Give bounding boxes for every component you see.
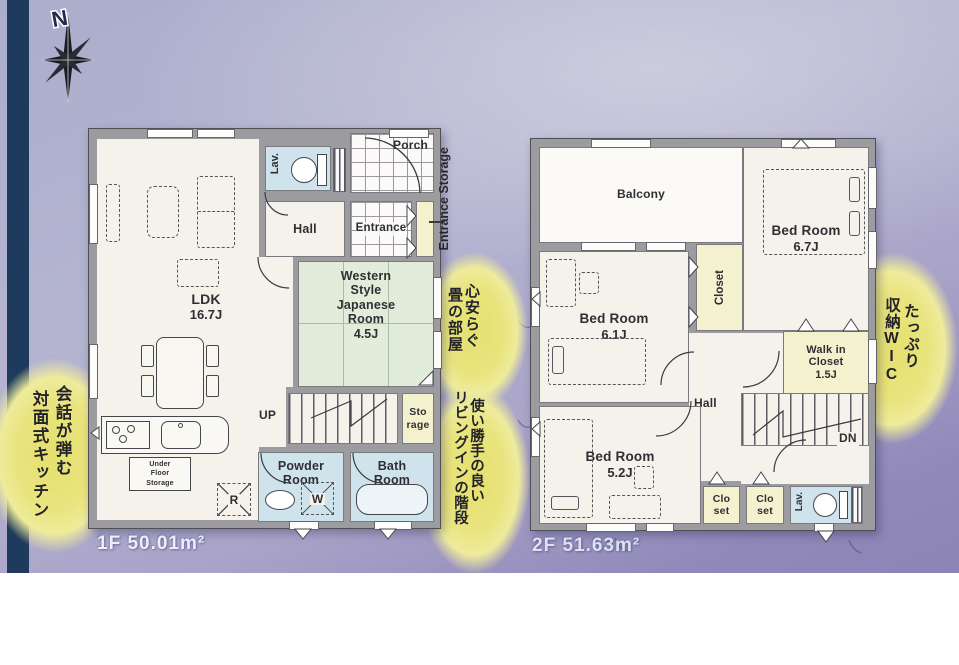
cabinet xyxy=(177,259,219,287)
floorplan-2f: Balcony Bed Room 6.7J Closet Bed Room 6.… xyxy=(530,138,876,531)
desk xyxy=(634,466,654,489)
floorplan-1f: LDK 16.7J Lav. Porch Hall Entrance Weste… xyxy=(88,128,441,529)
closet-left-label: Clo set xyxy=(704,493,739,517)
pillow xyxy=(552,346,564,374)
pillow xyxy=(551,496,579,510)
powder-sink xyxy=(265,490,295,510)
annotation-stairs-col2: リビングインの階段 xyxy=(450,390,471,525)
lavatory-label: Lav. xyxy=(269,153,281,174)
under-floor-storage-label: Under Floor Storage xyxy=(140,460,180,487)
desk-chair xyxy=(579,272,599,294)
window xyxy=(531,417,540,457)
wic-label: Walk in Closet 1.5J xyxy=(804,344,848,382)
entrance-storage-label: Entrance Storage xyxy=(437,147,451,251)
burner xyxy=(119,435,127,443)
dining-chair xyxy=(206,375,219,397)
window xyxy=(197,129,235,138)
bathtub xyxy=(356,484,428,515)
room-balcony: Balcony xyxy=(539,147,743,243)
room-entrance-storage xyxy=(416,201,434,257)
toilet-bowl xyxy=(813,493,837,517)
room-closet-right: Clo set xyxy=(746,486,784,524)
window xyxy=(591,139,651,148)
window xyxy=(586,523,636,532)
window xyxy=(868,167,877,209)
window xyxy=(781,139,836,148)
faucet xyxy=(178,423,183,428)
closet-label: Closet xyxy=(714,270,726,305)
tv-board xyxy=(106,184,120,242)
window xyxy=(868,231,877,269)
toilet-tank xyxy=(839,491,848,519)
porch-label: Porch xyxy=(393,139,428,153)
window xyxy=(814,523,834,532)
room-hall-2f xyxy=(741,446,869,484)
shelf-unit xyxy=(851,487,862,523)
annotation-wic-col1: たっぷり xyxy=(899,303,921,369)
storage-label: Sto rage xyxy=(403,406,433,430)
floor2-area-label: 2F 51.63m² xyxy=(532,535,640,557)
hall-label: Hall xyxy=(293,222,317,236)
washer-label: W xyxy=(310,493,325,505)
room-closet-left: Clo set xyxy=(703,486,740,524)
window xyxy=(289,521,319,530)
pillow xyxy=(849,177,860,202)
window xyxy=(433,277,442,319)
annotation-kitchen-col1: 会話が弾む xyxy=(50,385,74,478)
desk xyxy=(546,259,576,307)
dining-chair xyxy=(206,345,219,367)
sofa xyxy=(197,176,235,248)
shelf-unit xyxy=(333,148,346,192)
window xyxy=(646,242,686,251)
stairs-down-label: DN xyxy=(837,432,859,446)
window xyxy=(581,242,636,251)
ldk-label: LDK 16.7J xyxy=(171,291,241,323)
window xyxy=(868,339,877,384)
window xyxy=(646,523,674,532)
burner xyxy=(127,425,135,433)
window xyxy=(389,129,429,138)
room-porch: Porch xyxy=(350,133,434,193)
room-hall: Hall xyxy=(265,201,345,257)
room-walk-in-closet: Walk in Closet 1.5J xyxy=(783,331,869,395)
burner xyxy=(112,426,120,434)
annotation-wic-col2: 収納WIC xyxy=(880,297,902,384)
dining-chair xyxy=(141,375,154,397)
balcony-label: Balcony xyxy=(617,188,665,202)
staircase-up xyxy=(288,393,398,444)
stairs-up-label: UP xyxy=(259,409,276,423)
refrigerator-label: R xyxy=(228,494,241,506)
room-hall-2f xyxy=(689,333,783,393)
window xyxy=(531,287,540,327)
window xyxy=(89,344,98,399)
annotation-tatami-col2: 畳の部屋 xyxy=(444,287,465,353)
desk xyxy=(609,495,661,519)
floor1-area-label: 1F 50.01m² xyxy=(97,533,205,555)
lavatory-2f-label: Lav. xyxy=(794,492,805,511)
annotation-kitchen-col2: 対面式キッチン xyxy=(27,390,51,520)
window xyxy=(147,129,193,138)
toilet-tank xyxy=(317,154,327,186)
western-room-label: Western Style Japanese Room 4.5J xyxy=(329,269,403,342)
entrance-label: Entrance xyxy=(356,222,407,235)
washer-space: W xyxy=(301,482,334,515)
window xyxy=(89,184,98,244)
sofa-divider xyxy=(198,211,234,212)
window xyxy=(374,521,412,530)
under-floor-storage: Under Floor Storage xyxy=(129,457,191,491)
room-storage: Sto rage xyxy=(402,393,434,444)
room-closet: Closet xyxy=(696,244,743,331)
closet-right-label: Clo set xyxy=(747,493,783,517)
toilet-bowl xyxy=(291,157,317,183)
room-entrance: Entrance xyxy=(350,201,412,257)
dining-chair xyxy=(141,345,154,367)
refrigerator-space: R xyxy=(217,483,251,516)
window xyxy=(433,331,442,369)
pillow xyxy=(849,211,860,236)
low-table xyxy=(147,186,179,238)
dining-table xyxy=(156,337,204,409)
